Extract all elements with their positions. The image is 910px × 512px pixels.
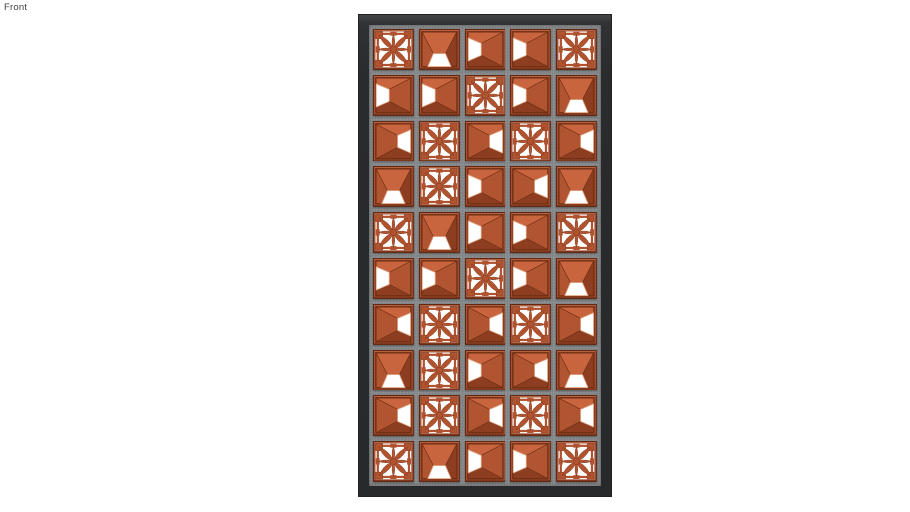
pyramid-breeze-block-opening-bottom: [556, 75, 597, 116]
ornamental-flower-breeze-block: [556, 29, 597, 70]
pyramid-breeze-block-opening-left: [373, 258, 414, 299]
pyramid-breeze-block-opening-left: [419, 75, 460, 116]
pyramid-block-icon: [373, 350, 414, 391]
flower-block-icon: [419, 121, 460, 162]
pyramid-block-icon: [510, 29, 551, 70]
pyramid-block-icon: [465, 121, 506, 162]
pyramid-breeze-block-opening-left: [465, 441, 506, 482]
pyramid-block-icon: [556, 166, 597, 207]
ornamental-flower-breeze-block: [556, 441, 597, 482]
ornamental-flower-breeze-block: [419, 304, 460, 345]
flower-block-icon: [419, 166, 460, 207]
viewport-canvas[interactable]: Front: [0, 0, 910, 512]
pyramid-breeze-block-opening-left: [510, 441, 551, 482]
pyramid-block-icon: [465, 395, 506, 436]
pyramid-breeze-block-opening-right: [510, 350, 551, 391]
pyramid-block-icon: [465, 350, 506, 391]
pyramid-breeze-block-opening-right: [556, 395, 597, 436]
pyramid-breeze-block-opening-right: [373, 121, 414, 162]
ornamental-flower-breeze-block: [465, 258, 506, 299]
flower-block-icon: [465, 75, 506, 116]
pyramid-breeze-block-opening-bottom: [419, 29, 460, 70]
pyramid-breeze-block-opening-left: [373, 75, 414, 116]
flower-block-icon: [510, 121, 551, 162]
flower-block-icon: [556, 212, 597, 253]
pyramid-block-icon: [465, 166, 506, 207]
pyramid-breeze-block-opening-right: [465, 304, 506, 345]
pyramid-breeze-block-opening-right: [510, 166, 551, 207]
ornamental-flower-breeze-block: [373, 441, 414, 482]
ornamental-flower-breeze-block: [419, 395, 460, 436]
ornamental-flower-breeze-block: [419, 350, 460, 391]
pyramid-breeze-block-opening-left: [510, 29, 551, 70]
pyramid-block-icon: [556, 258, 597, 299]
pyramid-block-icon: [419, 75, 460, 116]
pyramid-block-icon: [373, 258, 414, 299]
pyramid-block-icon: [419, 258, 460, 299]
ornamental-flower-breeze-block: [373, 212, 414, 253]
view-label: Front: [4, 2, 27, 13]
ornamental-flower-breeze-block: [419, 121, 460, 162]
pyramid-block-icon: [373, 395, 414, 436]
flower-block-icon: [373, 29, 414, 70]
flower-block-icon: [556, 29, 597, 70]
pyramid-breeze-block-opening-left: [465, 166, 506, 207]
breeze-block-panel-model[interactable]: [358, 14, 612, 497]
pyramid-block-icon: [373, 121, 414, 162]
pyramid-block-icon: [373, 75, 414, 116]
flower-block-icon: [465, 258, 506, 299]
pyramid-breeze-block-opening-right: [465, 395, 506, 436]
pyramid-block-icon: [510, 212, 551, 253]
pyramid-block-icon: [510, 441, 551, 482]
ornamental-flower-breeze-block: [465, 75, 506, 116]
pyramid-block-icon: [556, 350, 597, 391]
pyramid-breeze-block-opening-left: [465, 350, 506, 391]
pyramid-breeze-block-opening-right: [556, 121, 597, 162]
ornamental-flower-breeze-block: [556, 212, 597, 253]
pyramid-block-icon: [510, 75, 551, 116]
flower-block-icon: [556, 441, 597, 482]
pyramid-block-icon: [556, 395, 597, 436]
pyramid-breeze-block-opening-bottom: [373, 350, 414, 391]
pyramid-breeze-block-opening-bottom: [373, 166, 414, 207]
ornamental-flower-breeze-block: [510, 121, 551, 162]
flower-block-icon: [373, 212, 414, 253]
pyramid-block-icon: [556, 121, 597, 162]
pyramid-block-icon: [556, 304, 597, 345]
pyramid-breeze-block-opening-bottom: [419, 441, 460, 482]
pyramid-block-icon: [465, 304, 506, 345]
pyramid-block-icon: [510, 166, 551, 207]
pyramid-breeze-block-opening-right: [556, 304, 597, 345]
flower-block-icon: [510, 395, 551, 436]
pyramid-breeze-block-opening-left: [510, 212, 551, 253]
pyramid-block-icon: [465, 29, 506, 70]
pyramid-breeze-block-opening-left: [465, 212, 506, 253]
flower-block-icon: [419, 395, 460, 436]
flower-block-icon: [419, 350, 460, 391]
flower-block-icon: [510, 304, 551, 345]
ornamental-flower-breeze-block: [373, 29, 414, 70]
pyramid-breeze-block-opening-left: [510, 258, 551, 299]
pyramid-block-icon: [465, 441, 506, 482]
pyramid-breeze-block-opening-bottom: [556, 350, 597, 391]
ornamental-flower-breeze-block: [510, 395, 551, 436]
pyramid-breeze-block-opening-bottom: [556, 166, 597, 207]
pyramid-block-icon: [556, 75, 597, 116]
pyramid-block-icon: [465, 212, 506, 253]
pyramid-breeze-block-opening-left: [419, 258, 460, 299]
ornamental-flower-breeze-block: [419, 166, 460, 207]
pyramid-block-icon: [373, 166, 414, 207]
pyramid-block-icon: [419, 29, 460, 70]
flower-block-icon: [373, 441, 414, 482]
pyramid-breeze-block-opening-right: [465, 121, 506, 162]
pyramid-block-icon: [419, 441, 460, 482]
pyramid-breeze-block-opening-bottom: [556, 258, 597, 299]
pyramid-breeze-block-opening-left: [510, 75, 551, 116]
pyramid-breeze-block-opening-left: [465, 29, 506, 70]
pyramid-breeze-block-opening-right: [373, 395, 414, 436]
pyramid-breeze-block-opening-right: [373, 304, 414, 345]
ornamental-flower-breeze-block: [510, 304, 551, 345]
flower-block-icon: [419, 304, 460, 345]
pyramid-block-icon: [373, 304, 414, 345]
pyramid-block-icon: [510, 258, 551, 299]
pyramid-breeze-block-opening-bottom: [419, 212, 460, 253]
pyramid-block-icon: [419, 212, 460, 253]
block-grid: [369, 25, 601, 486]
pyramid-block-icon: [510, 350, 551, 391]
